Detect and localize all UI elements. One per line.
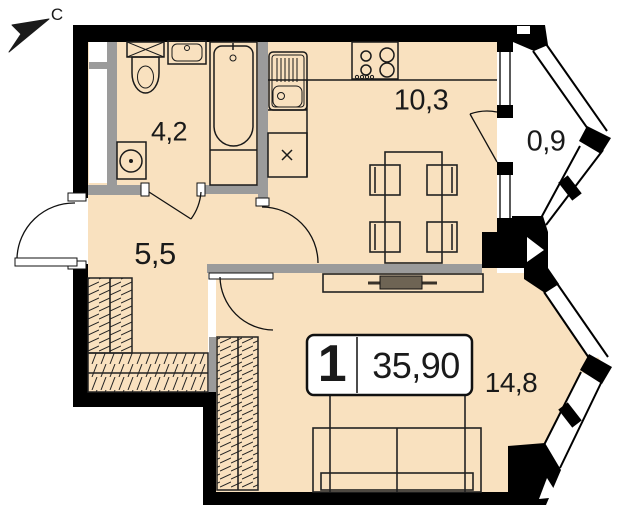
north-label: С — [51, 5, 63, 25]
floor-plan: С 4,2 10,3 0,9 5,5 14,8 1 35,90 — [0, 0, 630, 530]
floor-plan-drawing — [0, 0, 630, 530]
room-wardrobe — [217, 337, 258, 490]
entrance-door — [15, 193, 86, 269]
badge-total-area: 35,90 — [372, 345, 460, 387]
room-area-label-kitchen: 10,3 — [394, 85, 448, 118]
ventilation-shaft — [89, 40, 107, 183]
badge-rooms-count: 1 — [318, 334, 346, 394]
room-area-label-hallway: 5,5 — [134, 236, 176, 272]
room-area-label-bathroom: 4,2 — [151, 117, 187, 148]
room-area-label-balcony: 0,9 — [527, 126, 566, 159]
room-area-label-living-room: 14,8 — [485, 367, 538, 399]
north-arrow-icon — [9, 19, 49, 52]
